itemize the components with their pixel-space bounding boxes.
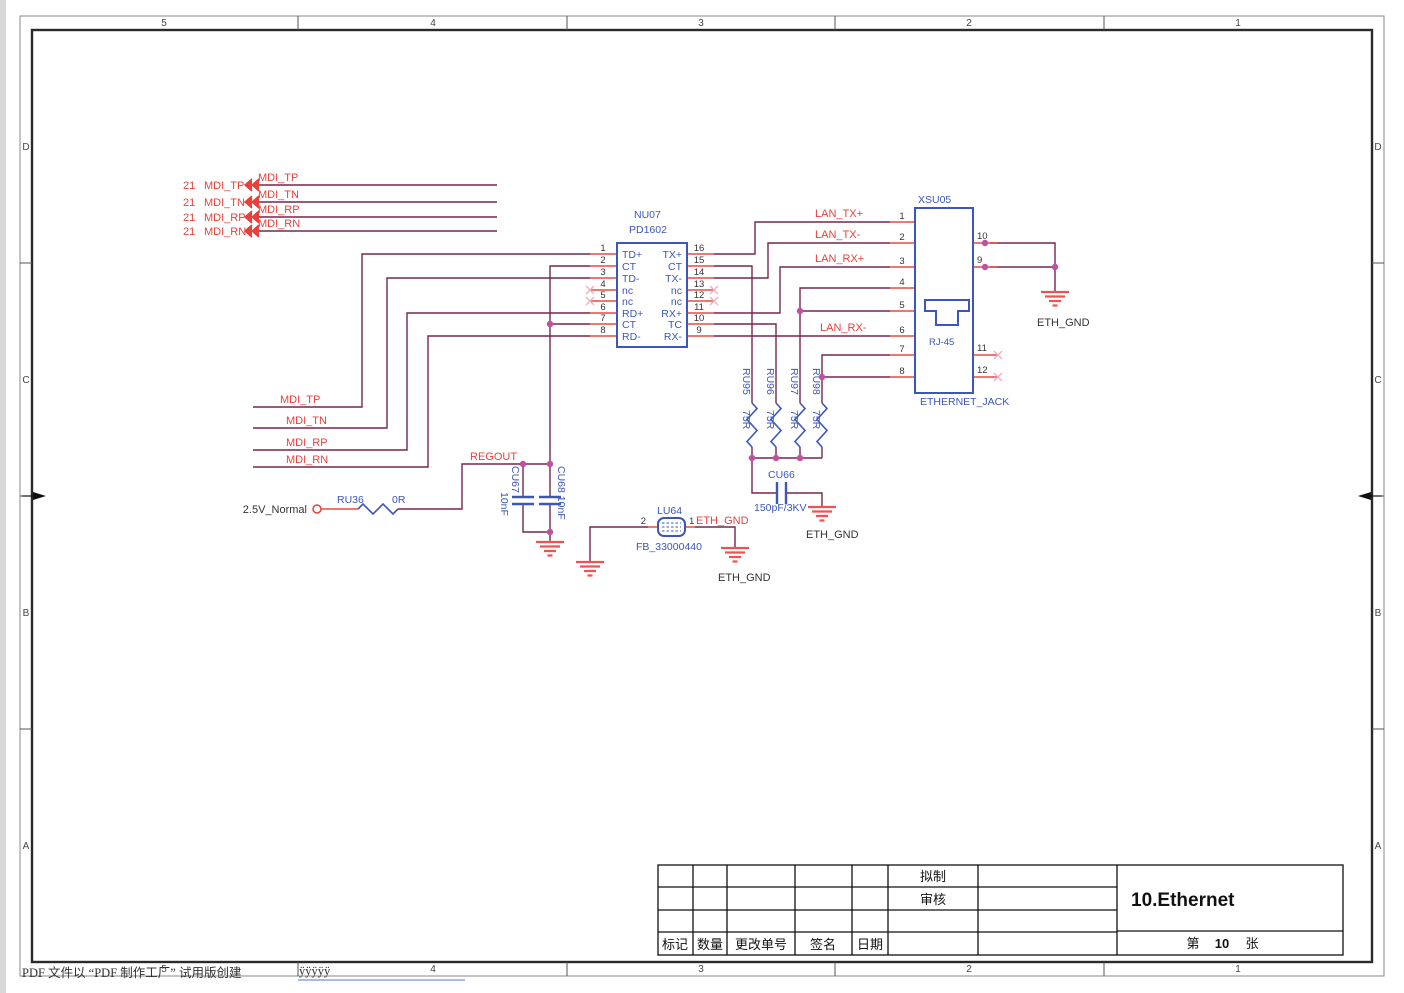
resistor-designator: RU97 — [788, 368, 800, 395]
pin-number: 12 — [694, 290, 705, 301]
grid-row-label: C — [1374, 375, 1381, 386]
net-label: MDI_RN — [258, 218, 300, 230]
resistor-designator: RU95 — [740, 368, 752, 395]
pin-name: nc — [671, 296, 682, 308]
titleblock-signature-label: 签名 — [810, 937, 836, 952]
grid-col-label: 3 — [698, 18, 704, 29]
pin-number: 4 — [600, 279, 605, 290]
pin-number: 11 — [694, 302, 704, 313]
cap-label: CU68 10nF — [555, 466, 567, 520]
port-sheet-ref: 21 — [183, 226, 195, 238]
schematic-canvas: 5 4 3 2 1 5 4 3 2 1 D C B A D C B A 21 M… — [0, 0, 1404, 993]
ground-icon: ETH_GND — [1037, 292, 1090, 329]
sheet-word-left: 第 — [1186, 936, 1199, 951]
title-block: 拟制 审核 标记 数量 更改单号 签名 日期 10.Ethernet 第 10 … — [658, 865, 1343, 955]
pin-name: TX- — [665, 273, 682, 285]
series-resistor-ru36: 2.5V_Normal RU36 0R — [243, 494, 406, 516]
power-port-icon — [313, 505, 321, 513]
net-label: LAN_TX+ — [815, 208, 863, 220]
pdf-trial-note: PDF 文件以 “PDF 制作工厂” 试用版创建 — [22, 965, 242, 980]
ground-icon — [536, 542, 564, 556]
pin-number: 15 — [694, 255, 705, 266]
pin-name: CT — [622, 261, 637, 273]
termination-resistors: RU95 RU96 RU97 RU98 75R 75R 75R 75R — [740, 368, 827, 447]
titleblock-date-label: 日期 — [857, 937, 883, 952]
cap-value: 10nF — [498, 492, 510, 516]
pin-number: 2 — [641, 516, 646, 527]
pin-number: 5 — [600, 290, 605, 301]
pin-number: 6 — [600, 302, 605, 313]
grid-row-label: A — [1375, 841, 1382, 852]
pin-number: 5 — [899, 300, 904, 311]
net-label: MDI_RN — [286, 454, 328, 466]
titleblock-drafted-label: 拟制 — [920, 869, 946, 884]
transformer-designator: NU07 — [634, 209, 661, 221]
pin-name: TC — [668, 319, 682, 331]
pin-number: 13 — [694, 279, 705, 290]
grid-row-label: C — [22, 375, 29, 386]
pin-number: 1 — [600, 243, 605, 254]
cap-value: 150pF/3KV — [754, 502, 807, 514]
jack-label: ETHERNET_JACK — [920, 396, 1009, 408]
pin-number: 8 — [600, 325, 605, 336]
sheet-title: 10.Ethernet — [1131, 890, 1235, 911]
port-sheet-ref: 21 — [183, 212, 195, 224]
titleblock-reviewed-label: 审核 — [920, 892, 946, 907]
cap-designator: CU66 — [768, 469, 795, 481]
pin-number: 16 — [694, 243, 705, 254]
ground-icon: ETH_GND — [806, 507, 859, 541]
schematic-page: 5 4 3 2 1 5 4 3 2 1 D C B A D C B A 21 M… — [0, 0, 1404, 993]
grid-row-label: B — [1375, 608, 1382, 619]
pin-name: TD+ — [622, 249, 642, 261]
pin-number: 2 — [600, 255, 605, 266]
mdi-sheet-ports: 21 MDI_TP MDI_TP 21 MDI_TN MDI_TN 21 MDI… — [183, 172, 497, 238]
grid-col-label: 4 — [430, 18, 436, 29]
pin-name: RX- — [664, 331, 683, 343]
pin-name: nc — [622, 296, 633, 308]
pin-number: 3 — [899, 256, 904, 267]
resistor-value: 75R — [810, 410, 822, 430]
sheet-centre-arrow-left — [22, 492, 46, 500]
pin-name: TX+ — [662, 249, 682, 261]
pin-number: 1 — [899, 211, 904, 222]
ground-net-label: ETH_GND — [806, 529, 859, 541]
pin-number: 10 — [694, 313, 705, 324]
ground-net-label: ETH_GND — [1037, 317, 1090, 329]
jack-icon-label: RJ-45 — [929, 337, 954, 348]
rj45-plug-icon — [925, 300, 969, 325]
port-sheet-ref: 21 — [183, 180, 195, 192]
transformer-part: PD1602 — [629, 224, 667, 236]
ferrite-bead-lu64: LU64 FB_33000440 2 1 — [636, 505, 702, 553]
port-chevron-icon — [245, 179, 259, 237]
pin-number: 12 — [977, 365, 988, 376]
grid-col-label: 3 — [698, 964, 704, 975]
titleblock-mark-label: 标记 — [662, 937, 688, 952]
grid-row-label: A — [23, 841, 30, 852]
decoupling-caps: CU67 10nF CU68 10nF — [498, 466, 567, 520]
ground-icon: ETH_GND — [718, 548, 771, 584]
grid-row-label: B — [23, 608, 30, 619]
sheet-number: 10 — [1215, 936, 1229, 951]
net-label: MDI_TN — [258, 189, 299, 201]
bead-designator: LU64 — [657, 505, 682, 517]
resistor-value: 0R — [392, 494, 406, 506]
net-label: MDI_RP — [258, 204, 300, 216]
grid-col-label: 2 — [966, 964, 972, 975]
window-edge — [0, 0, 6, 993]
port-sheet-ref: 21 — [183, 197, 195, 209]
pin-number: 9 — [696, 325, 701, 336]
pin-stubs — [321, 222, 998, 527]
net-label: LAN_RX- — [820, 322, 867, 334]
grid-col-label: 1 — [1235, 18, 1241, 29]
pin-name: RD- — [622, 331, 641, 343]
net-label: LAN_TX- — [815, 229, 861, 241]
pin-name: CT — [622, 319, 637, 331]
port-name: MDI_TN — [204, 197, 245, 209]
resistor-value: 75R — [740, 410, 752, 430]
power-rail-label: 2.5V_Normal — [243, 504, 307, 516]
pin-number: 9 — [977, 255, 982, 266]
pin-number: 14 — [694, 267, 705, 278]
pin-name: CT — [668, 261, 683, 273]
resistor-value: 75R — [764, 410, 776, 430]
grid-col-label: 5 — [161, 18, 167, 29]
hv-cap-cu66: CU66 150pF/3KV — [754, 469, 807, 514]
pin-number: 11 — [977, 343, 987, 354]
ground-net-label: ETH_GND — [718, 572, 771, 584]
cap-designator: CU67 — [509, 466, 521, 493]
grid-row-label: D — [1374, 142, 1381, 153]
pin-number: 3 — [600, 267, 605, 278]
pin-number: 7 — [899, 344, 904, 355]
sheet-word-right: 张 — [1245, 936, 1258, 951]
net-label: MDI_TN — [286, 415, 327, 427]
pin-number: 1 — [689, 516, 694, 527]
net-label: MDI_TP — [280, 394, 320, 406]
net-label: MDI_RP — [286, 437, 328, 449]
ethernet-jack-xsu05: XSU05 ETHERNET_JACK RJ-45 1 2 3 4 5 6 7 … — [899, 194, 1009, 408]
pin-number: 7 — [600, 313, 605, 324]
pin-number: 4 — [899, 277, 904, 288]
port-name: MDI_RP — [204, 212, 246, 224]
net-label: MDI_TP — [258, 172, 298, 184]
ground-icon — [576, 562, 604, 576]
grid-col-label: 2 — [966, 18, 972, 29]
net-label: LAN_RX+ — [815, 253, 864, 265]
grid-col-label: 4 — [430, 964, 436, 975]
pin-name: TD- — [622, 273, 640, 285]
resistor-designator: RU36 — [337, 494, 364, 506]
grid-row-label: D — [22, 142, 29, 153]
bead-part: FB_33000440 — [636, 541, 702, 553]
pin-number: 2 — [899, 232, 904, 243]
jack-designator: XSU05 — [918, 194, 951, 206]
port-name: MDI_TP — [204, 180, 244, 192]
pin-number: 6 — [899, 325, 904, 336]
titleblock-quantity-label: 数量 — [697, 937, 723, 952]
footer-link-text[interactable]: ÿÿÿÿÿ — [299, 964, 331, 978]
titleblock-change-order-label: 更改单号 — [735, 937, 787, 952]
pdf-trial-footer: PDF 文件以 “PDF 制作工厂” 试用版创建 ÿÿÿÿÿ — [22, 964, 465, 980]
resistor-designator: RU96 — [764, 368, 776, 395]
resistor-value: 75R — [788, 410, 800, 430]
port-name: MDI_RN — [204, 226, 246, 238]
sheet-centre-arrow-right — [1358, 492, 1382, 500]
resistor-designator: RU98 — [810, 368, 822, 395]
sheet-border: 5 4 3 2 1 5 4 3 2 1 D C B A D C B A — [20, 16, 1384, 976]
grid-col-label: 1 — [1235, 964, 1241, 975]
pin-number: 8 — [899, 366, 904, 377]
net-label: REGOUT — [470, 451, 517, 463]
net-label: ETH_GND — [696, 515, 749, 527]
